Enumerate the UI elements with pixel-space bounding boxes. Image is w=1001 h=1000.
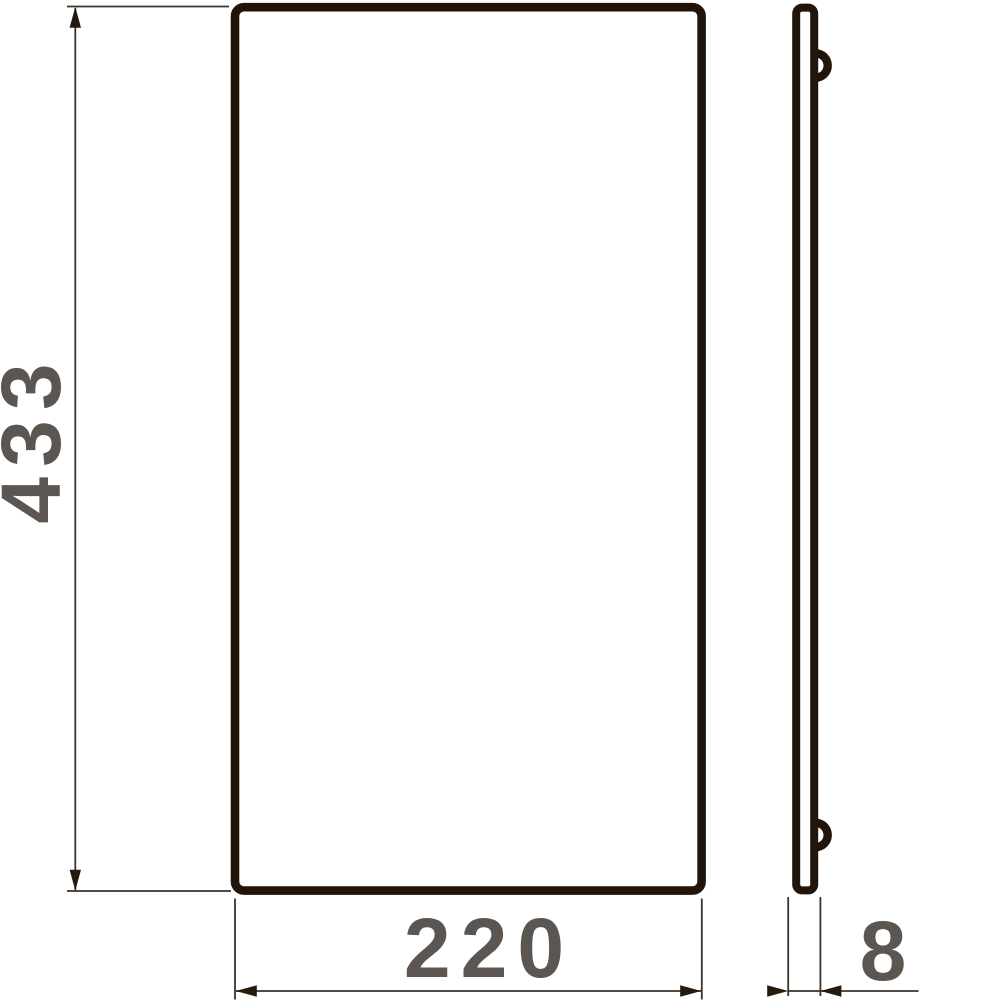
svg-text:8: 8 — [860, 904, 907, 998]
svg-text:433: 433 — [0, 353, 78, 523]
svg-text:220: 220 — [404, 901, 574, 995]
